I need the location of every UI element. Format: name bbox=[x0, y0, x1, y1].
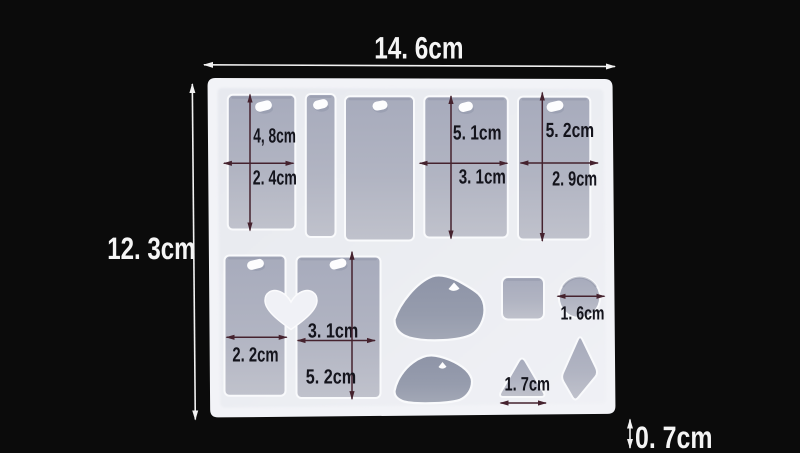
svg-text:2. 9cm: 2. 9cm bbox=[552, 168, 597, 191]
svg-text:5. 2cm: 5. 2cm bbox=[546, 119, 595, 142]
svg-text:5. 2cm: 5. 2cm bbox=[306, 365, 356, 388]
svg-text:1. 7cm: 1. 7cm bbox=[505, 374, 551, 396]
svg-text:3. 1cm: 3. 1cm bbox=[459, 165, 506, 188]
svg-text:14. 6cm: 14. 6cm bbox=[374, 30, 463, 65]
svg-text:3. 1cm: 3. 1cm bbox=[308, 319, 358, 342]
svg-text:12. 3cm: 12. 3cm bbox=[107, 231, 195, 266]
svg-text:0. 7cm: 0. 7cm bbox=[635, 420, 713, 453]
svg-text:4, 8cm: 4, 8cm bbox=[253, 125, 296, 148]
svg-text:1. 6cm: 1. 6cm bbox=[561, 304, 605, 325]
svg-text:2. 4cm: 2. 4cm bbox=[253, 166, 297, 189]
svg-text:2. 2cm: 2. 2cm bbox=[232, 343, 278, 366]
svg-text:5. 1cm: 5. 1cm bbox=[453, 121, 502, 144]
